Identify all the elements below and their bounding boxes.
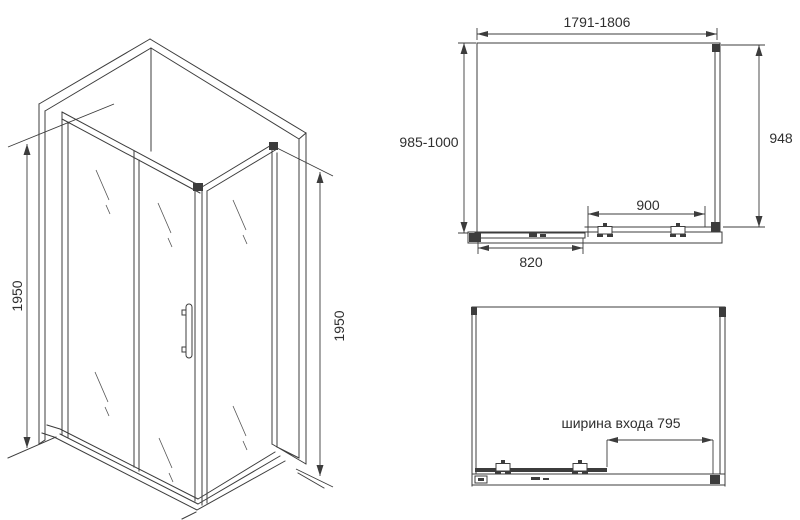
technical-drawing-svg: 1950 1950 <box>0 0 800 520</box>
entrance-width-label: ширина входа 795 <box>561 415 680 431</box>
plan-closed-dimension-lines <box>458 28 765 254</box>
door-handle <box>182 304 192 358</box>
corner-post-cap <box>193 183 203 191</box>
iso-right-height-label: 1950 <box>331 310 347 341</box>
iso-dimension-lines <box>8 104 333 487</box>
plan-open-rail <box>472 474 725 485</box>
overall-width-label: 1791-1806 <box>564 14 631 30</box>
glass-reflection-marks <box>95 170 247 482</box>
side-panel-depth-label: 948 <box>769 130 793 146</box>
fixed-panel-width-label: 820 <box>519 254 543 270</box>
plan-view-closed: 1791-1806 985-1000 948 900 820 <box>399 14 792 270</box>
wall-profile-cap-left <box>471 307 477 315</box>
door-section-width-label: 900 <box>636 197 660 213</box>
plan-view-open: ширина входа 795 <box>471 307 726 486</box>
iso-left-height-label: 1950 <box>9 280 25 311</box>
plan-open-dimension-lines <box>607 440 713 474</box>
right-wall <box>150 39 306 464</box>
roller-icon <box>597 223 613 237</box>
shower-enclosure-drawing: 1950 1950 <box>0 0 800 520</box>
roller-icon <box>670 223 686 237</box>
plan-open-outline <box>472 307 725 486</box>
plan-closed-outline <box>477 43 720 232</box>
corner-block-top <box>712 44 720 52</box>
iso-view: 1950 1950 <box>8 39 347 519</box>
wall-profile-cap-right <box>719 307 726 317</box>
overall-depth-label: 985-1000 <box>399 134 458 150</box>
